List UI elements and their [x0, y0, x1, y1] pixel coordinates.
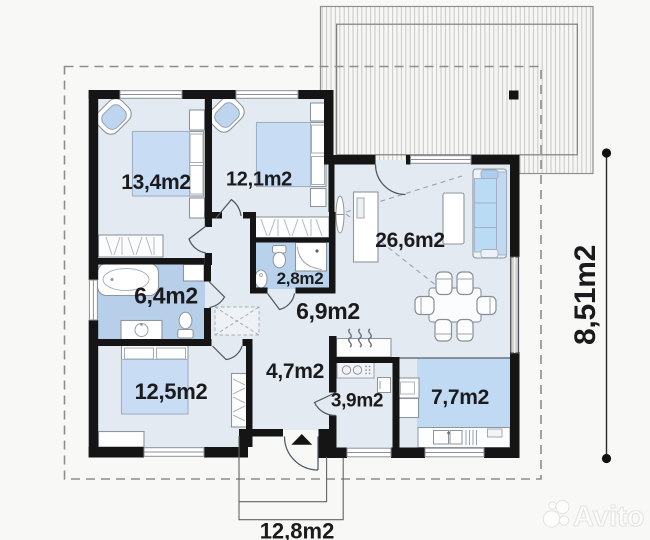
svg-text:3,9m2: 3,9m2	[331, 391, 383, 412]
svg-text:Avito: Avito	[573, 501, 644, 533]
svg-text:7,7m2: 7,7m2	[431, 386, 489, 409]
svg-text:2,8m2: 2,8m2	[277, 269, 324, 288]
svg-text:26,6m2: 26,6m2	[375, 229, 444, 252]
svg-text:12,8m2: 12,8m2	[260, 519, 335, 540]
svg-text:6,4m2: 6,4m2	[134, 283, 198, 309]
svg-text:8,51m2: 8,51m2	[569, 245, 602, 345]
svg-text:12,1m2: 12,1m2	[226, 169, 292, 191]
svg-text:12,5m2: 12,5m2	[135, 379, 208, 404]
svg-text:6,9m2: 6,9m2	[296, 298, 360, 324]
svg-text:13,4m2: 13,4m2	[121, 171, 190, 194]
svg-text:4,7m2: 4,7m2	[266, 360, 324, 383]
